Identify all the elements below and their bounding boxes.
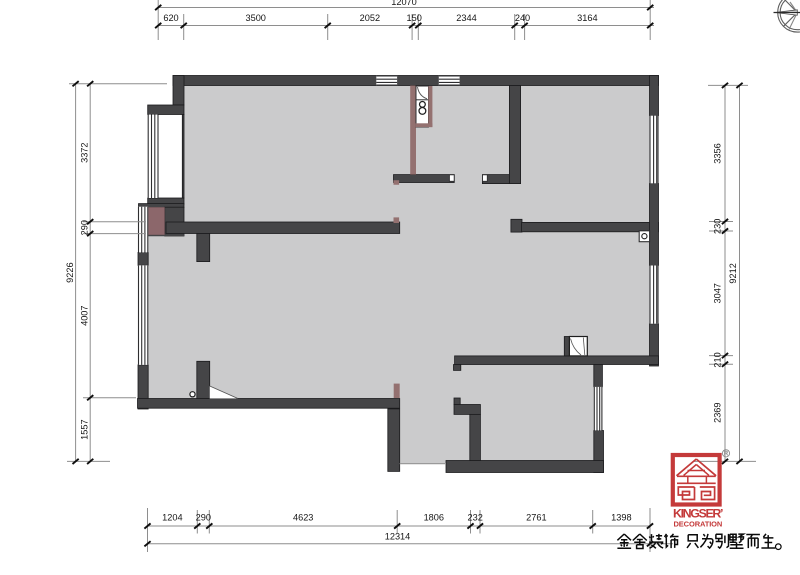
svg-text:4623: 4623 xyxy=(293,513,313,523)
svg-text:9226: 9226 xyxy=(65,262,75,282)
svg-text:2344: 2344 xyxy=(456,13,476,23)
svg-text:1204: 1204 xyxy=(162,513,182,523)
svg-text:4007: 4007 xyxy=(80,305,90,325)
svg-text:3500: 3500 xyxy=(245,13,265,23)
svg-text:1557: 1557 xyxy=(80,419,90,439)
svg-text:1806: 1806 xyxy=(424,513,444,523)
svg-text:2369: 2369 xyxy=(712,402,722,422)
svg-text:230: 230 xyxy=(712,219,722,234)
svg-text:150: 150 xyxy=(407,13,422,23)
svg-text:KINGSER’: KINGSER’ xyxy=(673,507,724,521)
svg-text:290: 290 xyxy=(80,220,90,235)
svg-text:3372: 3372 xyxy=(80,142,90,162)
svg-text:290: 290 xyxy=(196,513,211,523)
svg-text:3164: 3164 xyxy=(577,13,597,23)
svg-text:620: 620 xyxy=(163,13,178,23)
svg-text:1398: 1398 xyxy=(611,513,631,523)
svg-text:3356: 3356 xyxy=(712,143,722,163)
svg-text:2761: 2761 xyxy=(526,513,546,523)
svg-text:240: 240 xyxy=(515,13,530,23)
svg-text:12314: 12314 xyxy=(385,532,411,542)
svg-text:210: 210 xyxy=(712,352,722,367)
svg-text:3047: 3047 xyxy=(712,283,722,303)
svg-text:2052: 2052 xyxy=(360,13,380,23)
svg-text:9212: 9212 xyxy=(728,263,738,283)
svg-text:12070: 12070 xyxy=(391,0,417,7)
svg-text:DECORATION: DECORATION xyxy=(674,520,723,529)
svg-text:232: 232 xyxy=(468,513,483,523)
